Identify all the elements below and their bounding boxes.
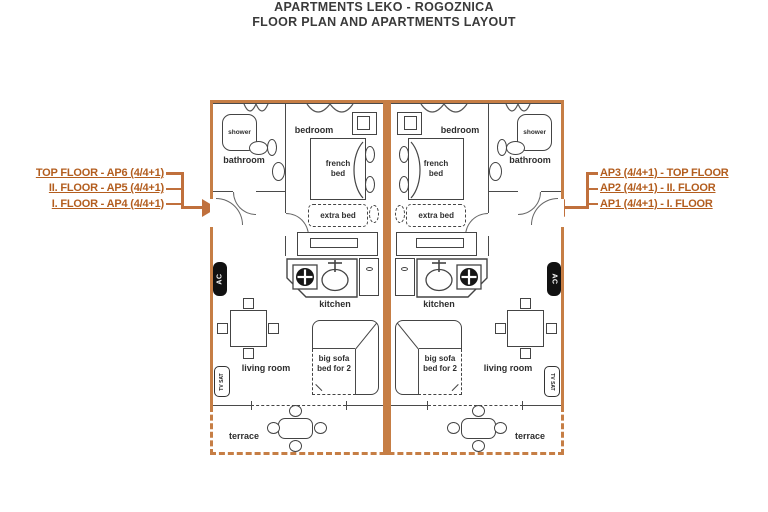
blanket-fold-line — [347, 141, 365, 204]
bathroom-wall-a — [541, 191, 561, 192]
apartment-left: shower bathroom bedroom french bed extra… — [213, 103, 383, 452]
toilet-tank — [267, 139, 277, 156]
legend-left-second-floor: II. FLOOR - AP5 (4/4+1) — [2, 181, 164, 196]
entrance-gap-right — [561, 199, 565, 227]
legend-right-bracket — [586, 172, 589, 209]
kitchen-counter — [286, 258, 358, 303]
sofa-seat-edge-v — [418, 349, 419, 394]
extra-bed-label: extra bed — [418, 211, 454, 221]
extra-bed-pillow — [369, 205, 379, 223]
toilet-bowl — [249, 141, 268, 155]
terrace-chair-top — [472, 405, 485, 417]
dining-chair-right — [268, 323, 279, 334]
terrace-wall-right — [346, 405, 383, 406]
terrace-chair-right — [447, 422, 460, 434]
dining-chair-right — [495, 323, 506, 334]
terrace-wall-left — [523, 405, 561, 406]
terrace-tick-right — [346, 401, 347, 410]
terrace-label: terrace — [505, 431, 555, 442]
dining-table — [230, 310, 267, 347]
bedroom-wall — [488, 103, 489, 213]
middle-divider-wall — [383, 103, 391, 455]
page-title-line1: APARTMENTS LEKO - ROGOZNICA — [0, 0, 768, 15]
bedside-pillow-bottom — [365, 176, 375, 193]
terrace-table — [461, 418, 496, 439]
sofa-seat-edge-v — [355, 349, 356, 394]
wardrobe-cabinet-inner — [357, 116, 370, 130]
bedside-pillow-top — [399, 146, 409, 163]
bedroom-label: bedroom — [433, 125, 487, 136]
dresser — [396, 232, 477, 256]
legend-left-arrow-shaft — [181, 206, 203, 209]
kitchen-side-cabinet — [395, 258, 415, 296]
wardrobe-cabinet-inner — [404, 116, 417, 130]
terrace-tick-right — [427, 401, 428, 410]
tv-sat-unit: TV SAT — [214, 366, 230, 397]
cabinet-handle — [401, 267, 408, 271]
terrace-tick-left — [251, 401, 252, 410]
wardrobe-cabinet — [397, 112, 422, 135]
top-wall-line — [213, 103, 383, 104]
bedroom-wall-lower — [488, 236, 489, 256]
dining-chair-top — [243, 298, 254, 309]
terrace-tick-left — [522, 401, 523, 410]
sofa-seat-edge-h — [313, 348, 355, 349]
terrace-wall-left — [213, 405, 251, 406]
wardrobe-cabinet — [352, 112, 377, 135]
legend-left: TOP FLOOR - AP6 (4/4+1) II. FLOOR - AP5 … — [2, 166, 164, 212]
toilet-bowl — [506, 141, 525, 155]
dining-chair-top — [520, 298, 531, 309]
bathroom-wall-a — [213, 191, 233, 192]
bathroom-label: bathroom — [499, 155, 561, 166]
toilet-tank — [497, 139, 507, 156]
bathroom-label: bathroom — [213, 155, 275, 166]
sofa-bed-label: big sofa bed for 2 — [314, 354, 354, 374]
sofa-bed: big sofa bed for 2 — [312, 320, 379, 395]
terrace-wall-right — [391, 405, 428, 406]
bedroom-label: bedroom — [287, 125, 341, 136]
bedroom-wall — [285, 103, 286, 213]
kitchen-label: kitchen — [413, 299, 465, 310]
bedroom-window-curtain-icon — [306, 104, 354, 125]
terrace-table — [278, 418, 313, 439]
legend-left-stub-2 — [166, 188, 182, 191]
top-wall-line — [391, 103, 561, 104]
dining-chair-left — [217, 323, 228, 334]
dresser-inner — [310, 238, 358, 248]
bedside-pillow-top — [365, 146, 375, 163]
terrace-chair-bottom — [289, 440, 302, 452]
dining-chair-bottom — [520, 348, 531, 359]
cabinet-handle — [366, 267, 373, 271]
living-room-label: living room — [475, 363, 541, 374]
sofa-seat-edge-h — [419, 348, 461, 349]
bedroom-wall-lower — [285, 236, 286, 256]
sofa-bed-label: big sofa bed for 2 — [420, 354, 460, 374]
extra-bed-label: extra bed — [320, 211, 356, 221]
extra-bed: extra bed — [308, 204, 368, 227]
dresser — [297, 232, 378, 256]
extra-bed-pillow — [395, 205, 405, 223]
tv-sat-label: TV SAT — [219, 373, 225, 390]
french-bed: french bed — [408, 138, 464, 200]
tv-sat-unit: TV SAT — [544, 366, 560, 397]
terrace-chair-bottom — [472, 440, 485, 452]
terrace-label: terrace — [219, 431, 269, 442]
legend-left-first-floor: I. FLOOR - AP4 (4/4+1) — [2, 197, 164, 212]
legend-left-stub-1 — [166, 172, 182, 175]
bedroom-window-curtain-icon — [420, 104, 468, 125]
dresser-inner — [416, 238, 464, 248]
bathroom-wall-b — [256, 191, 286, 192]
living-room-label: living room — [233, 363, 299, 374]
kitchen-counter — [416, 258, 488, 303]
sofa-bed: big sofa bed for 2 — [395, 320, 462, 395]
dining-chair-bottom — [243, 348, 254, 359]
blanket-fold-line — [409, 141, 427, 204]
french-bed: french bed — [310, 138, 366, 200]
ac-unit: AC — [213, 262, 227, 296]
legend-right-top-floor: AP3 (4/4+1) - TOP FLOOR — [600, 166, 768, 181]
kitchen-side-cabinet — [359, 258, 379, 296]
legend-right-arrow-shaft — [564, 206, 589, 209]
apartment-right: shower bathroom bedroom french bed extra… — [391, 103, 561, 452]
ac-label: AC — [551, 273, 558, 284]
legend-left-bracket — [181, 172, 184, 209]
legend-left-top-floor: TOP FLOOR - AP6 (4/4+1) — [2, 166, 164, 181]
ac-label: AC — [217, 273, 224, 284]
terrace-chair-right — [314, 422, 327, 434]
legend-right-second-floor: AP2 (4/4+1) - II. FLOOR — [600, 181, 768, 196]
extra-bed: extra bed — [406, 204, 466, 227]
terrace-chair-top — [289, 405, 302, 417]
legend-right: AP3 (4/4+1) - TOP FLOOR AP2 (4/4+1) - II… — [600, 166, 768, 212]
shower-label: shower — [523, 129, 546, 137]
legend-right-first-floor: AP1 (4/4+1) - I. FLOOR — [600, 197, 768, 212]
page-title: APARTMENTS LEKO - ROGOZNICA FLOOR PLAN A… — [0, 0, 768, 30]
tv-sat-label: TV SAT — [549, 373, 555, 390]
bathroom-wall-b — [488, 191, 518, 192]
kitchen-label: kitchen — [309, 299, 361, 310]
bedside-pillow-bottom — [399, 176, 409, 193]
ac-unit: AC — [547, 262, 561, 296]
dining-table — [507, 310, 544, 347]
page-title-line2: FLOOR PLAN AND APARTMENTS LAYOUT — [0, 15, 768, 30]
shower-label: shower — [228, 129, 251, 137]
legend-left-stub-3 — [166, 203, 182, 206]
dining-chair-left — [546, 323, 557, 334]
floor-plan: shower bathroom bedroom french bed extra… — [210, 100, 564, 455]
